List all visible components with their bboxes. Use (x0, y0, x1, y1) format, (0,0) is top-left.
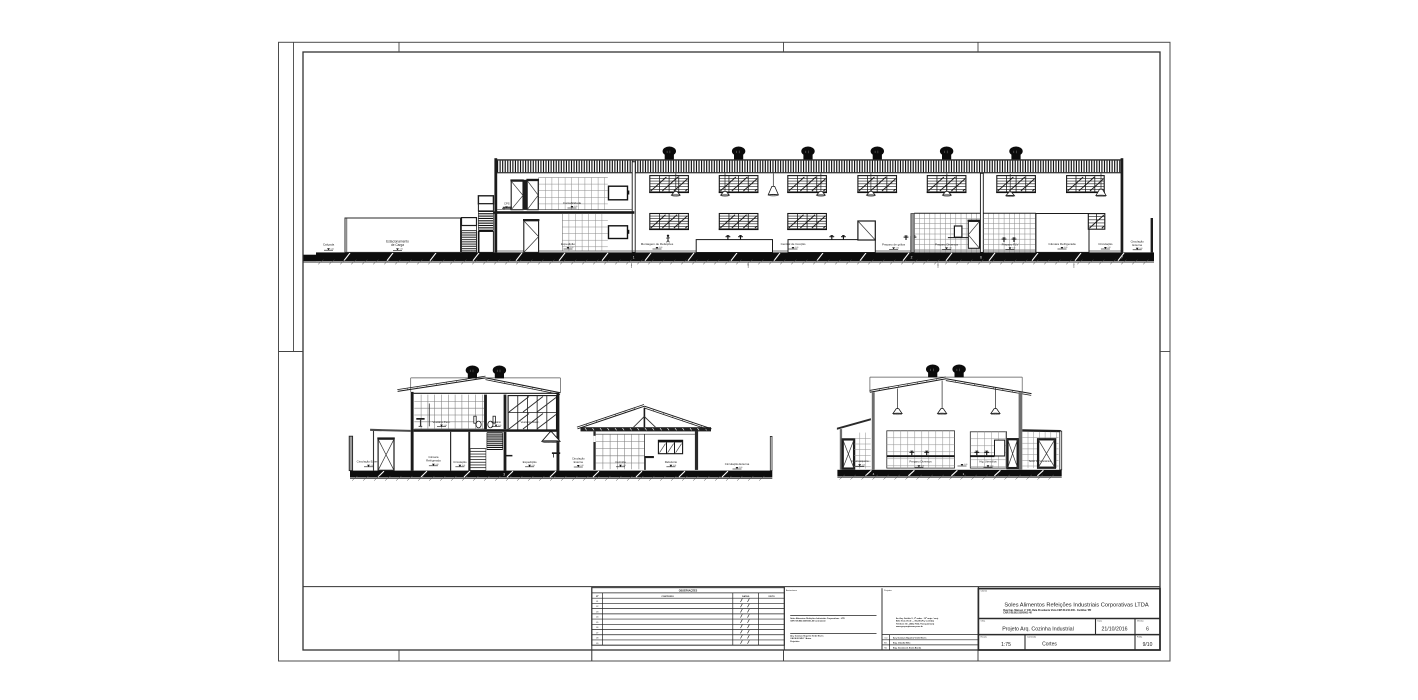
svg-text:Bela Vista Verde — 80.230 (Pq.: Bela Vista Verde — 80.230 (Pq. Curitiba) (896, 620, 934, 623)
svg-text:Externa: Externa (574, 460, 584, 464)
svg-text:9/10: 9/10 (1143, 642, 1153, 648)
svg-text:Nº: Nº (596, 595, 599, 598)
svg-text:Preparo Diversos: Preparo Diversos (909, 460, 932, 464)
svg-text:DATAS: DATAS (742, 595, 750, 598)
svg-text:Preparo de grãos: Preparo de grãos (882, 242, 906, 246)
svg-text:OBSERVAÇÕES: OBSERVAÇÕES (679, 590, 698, 593)
svg-text:de Carga: de Carga (391, 243, 404, 247)
svg-text:Eng. Gustavo A. Santa Bonita: Eng. Gustavo A. Santa Bonita (893, 647, 922, 650)
svg-text:Folha: Folha (1137, 636, 1143, 638)
svg-text:Eng. Cláudio Melo: Eng. Cláudio Melo (893, 643, 911, 645)
svg-text:21/10/2016: 21/10/2016 (1102, 626, 1128, 632)
svg-text:Projeto Arq. Cozinha Industria: Projeto Arq. Cozinha Industrial (1002, 626, 1074, 632)
svg-text:Vestiário Fem.: Vestiário Fem. (433, 420, 451, 424)
svg-text:Escala: Escala (981, 636, 988, 638)
svg-text:Circulação Externa: Circulação Externa (357, 460, 381, 464)
svg-text:Expedição: Expedição (523, 460, 537, 464)
svg-text:Telefone: 55 - (041) 7002-77 (: Telefone: 55 - (041) 7002-77 (arquitetur… (896, 622, 935, 625)
svg-text:6: 6 (980, 255, 982, 259)
svg-text:1: 1 (633, 255, 635, 259)
svg-text:1:75: 1:75 (1001, 642, 1011, 648)
svg-text:Calçada: Calçada (323, 243, 335, 247)
svg-text:Av. Arq. Getúlio V., 2º andar: Av. Arq. Getúlio V., 2º andar - 12º arqt… (896, 617, 939, 620)
svg-text:Projetista: Projetista (790, 640, 800, 643)
svg-text:Cliente: Cliente (981, 589, 988, 592)
svg-text:Setor de Vestiários: Setor de Vestiários (1029, 459, 1052, 463)
svg-text:Refrigerada: Refrigerada (426, 459, 441, 463)
svg-text:Refeitório: Refeitório (665, 460, 678, 464)
svg-text:Expedição: Expedição (561, 242, 575, 246)
svg-text:CNPJ 08.862.530/0001-40 Contra: CNPJ 08.862.530/0001-40 Contratante (790, 619, 826, 622)
svg-text:Central de Cocção: Central de Cocção (781, 242, 806, 246)
svg-text:Preparo Diversos: Preparo Diversos (935, 242, 959, 246)
svg-text:Hig. Utensílios: Hig. Utensílios (979, 460, 997, 464)
svg-text:Contabilidade: Contabilidade (563, 201, 582, 205)
svg-text:3: 3 (503, 472, 505, 476)
svg-text:2: 2 (911, 255, 913, 259)
svg-text:Câmara Refrigerada: Câmara Refrigerada (1048, 242, 1076, 246)
svg-text:Projetos: Projetos (884, 589, 892, 592)
svg-text:Preparo FLV: Preparo FLV (1002, 242, 1019, 246)
svg-text:Arq. Gustavo Siqueira Verde Ne: Arq. Gustavo Siqueira Verde Neves (790, 635, 824, 638)
svg-text:Circulação Externa: Circulação Externa (725, 462, 750, 466)
svg-text:Soles Alimentos Refeições Indu: Soles Alimentos Refeições Industriais Co… (790, 617, 845, 620)
svg-text:Circulação: Circulação (1098, 242, 1113, 246)
svg-text:7: 7 (1121, 255, 1123, 259)
svg-text:Conteúdo: Conteúdo (1027, 635, 1037, 638)
svg-text:CONTEÚDO: CONTEÚDO (661, 595, 674, 598)
svg-text:Externa: Externa (1132, 243, 1142, 247)
svg-text:Churrasqueira: Churrasqueira (851, 459, 869, 463)
svg-text:Circulação: Circulação (453, 460, 467, 464)
svg-text:Cortes: Cortes (1042, 642, 1057, 648)
svg-text:CNPJ 08.862.530/0001-40: CNPJ 08.862.530/0001-40 (1003, 612, 1032, 615)
svg-text:Vestiário: Vestiário (491, 420, 502, 424)
svg-text:6: 6 (1146, 626, 1149, 632)
svg-text:CPS: CPS (504, 202, 510, 206)
svg-text:VISTO: VISTO (768, 596, 775, 598)
svg-text:Arq. Gustavo Siqueira Verde Ne: Arq. Gustavo Siqueira Verde Neves (893, 636, 927, 639)
svg-text:Cozinha: Cozinha (615, 460, 626, 464)
svg-text:CAU A12.345-7 / Autor: CAU A12.345-7 / Autor (790, 637, 811, 640)
svg-text:Assinaturas: Assinaturas (786, 589, 797, 592)
svg-text:Montagem de Refeições: Montagem de Refeições (641, 242, 674, 246)
svg-text:Soles Alimentos Refeições Indu: Soles Alimentos Refeições Industriais Co… (1004, 602, 1149, 608)
svg-text:Versão: Versão (1137, 619, 1144, 622)
svg-text:www.gsvprojetosarq.com.br: www.gsvprojetosarq.com.br (896, 625, 923, 628)
svg-text:Vestiário Masc.: Vestiário Masc. (521, 420, 540, 424)
